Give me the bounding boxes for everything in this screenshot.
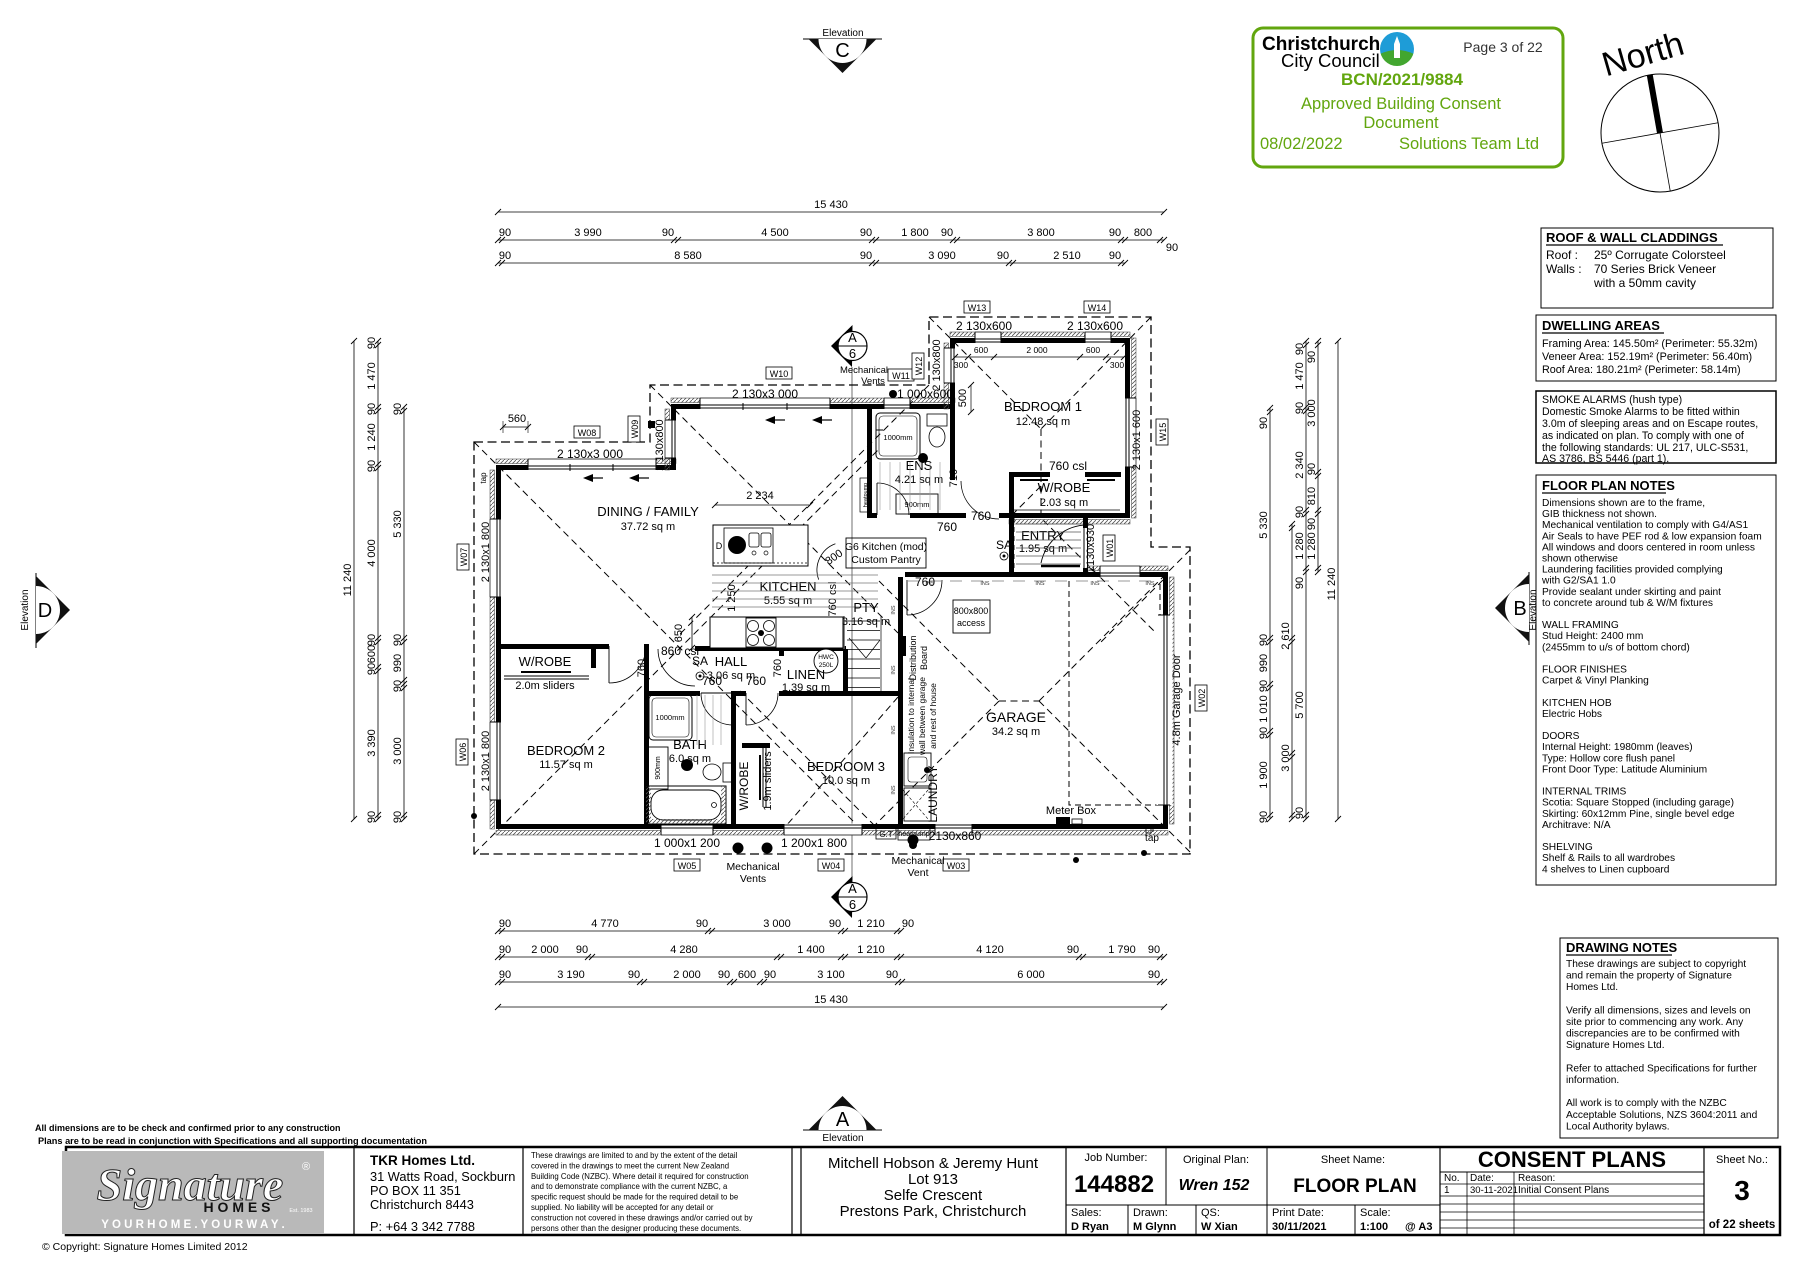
svg-text:600: 600	[738, 969, 756, 981]
svg-text:2 130x800: 2 130x800	[654, 419, 666, 470]
svg-text:Electric Hobs: Electric Hobs	[1542, 709, 1602, 720]
svg-text:90: 90	[499, 918, 511, 930]
svg-text:Y O U R H O M E . Y O U R W: Y O U R H O M E . Y O U R W A Y .	[101, 1219, 284, 1231]
svg-text:These drawings are subject to: These drawings are subject to copyright	[1566, 959, 1746, 970]
svg-text:3.06 sq m: 3.06 sq m	[707, 670, 755, 682]
svg-text:HALL: HALL	[715, 654, 748, 669]
svg-text:2 000: 2 000	[1026, 345, 1048, 355]
svg-text:11 240: 11 240	[1326, 568, 1338, 601]
svg-text:Homes Ltd.: Homes Ltd.	[1566, 982, 1618, 993]
svg-text:2 130x600: 2 130x600	[1067, 319, 1123, 333]
svg-text:4 500: 4 500	[761, 227, 789, 239]
svg-text:No.: No.	[1444, 1173, 1460, 1184]
svg-text:1000mm: 1000mm	[655, 713, 684, 722]
svg-text:600: 600	[366, 645, 378, 663]
svg-text:Veneer Area: 152.19m² (Perimet: Veneer Area: 152.19m² (Perimeter: 56.40m…	[1542, 351, 1752, 363]
svg-text:A: A	[836, 1109, 850, 1131]
svg-text:SA: SA	[692, 654, 708, 668]
svg-text:Lot 913: Lot 913	[908, 1171, 958, 1188]
svg-text:INS: INS	[980, 581, 990, 587]
svg-text:W13: W13	[968, 303, 987, 313]
svg-text:Laundering facilities provided: Laundering facilities provided complying	[1542, 565, 1723, 576]
svg-text:INS: INS	[891, 665, 897, 675]
svg-text:11.57 sq m: 11.57 sq m	[539, 759, 593, 771]
svg-text:6: 6	[849, 897, 856, 912]
svg-text:Page 3 of 22: Page 3 of 22	[1463, 39, 1543, 55]
svg-text:3 190: 3 190	[557, 969, 585, 981]
svg-text:Elevation: Elevation	[20, 589, 31, 630]
svg-text:4 shelves to Linen cupboard: 4 shelves to Linen cupboard	[1542, 864, 1670, 875]
svg-text:2 130x3 000: 2 130x3 000	[557, 447, 623, 461]
svg-text:2130x930: 2130x930	[1085, 524, 1097, 572]
svg-text:LINEN: LINEN	[787, 667, 825, 682]
svg-text:90: 90	[1148, 969, 1160, 981]
svg-text:90: 90	[860, 250, 872, 262]
svg-text:WALL FRAMING: WALL FRAMING	[1542, 620, 1619, 631]
svg-text:Job Number:: Job Number:	[1085, 1152, 1148, 1164]
svg-text:persons other than the designe: persons other than the designer producin…	[531, 1224, 741, 1233]
svg-text:access: access	[957, 618, 986, 628]
svg-text:90: 90	[1258, 811, 1270, 823]
svg-text:90: 90	[576, 944, 588, 956]
svg-text:Signature Homes Ltd.: Signature Homes Ltd.	[1566, 1040, 1665, 1051]
svg-text:Internal Height: 1980mm (leave: Internal Height: 1980mm (leaves)	[1542, 742, 1693, 753]
svg-text:2.0m sliders: 2.0m sliders	[515, 680, 575, 692]
svg-text:2 510: 2 510	[1053, 250, 1081, 262]
svg-text:W07: W07	[459, 548, 469, 567]
svg-text:W11: W11	[892, 371, 910, 381]
svg-text:Elevation: Elevation	[822, 28, 863, 39]
svg-text:1.95 sq m: 1.95 sq m	[1019, 543, 1067, 555]
svg-text:800x800: 800x800	[954, 606, 989, 616]
svg-text:W04: W04	[822, 861, 841, 871]
svg-text:34.2 sq m: 34.2 sq m	[992, 726, 1040, 738]
svg-text:1 280: 1 280	[1294, 532, 1306, 560]
svg-text:2 130x3 000: 2 130x3 000	[732, 387, 798, 401]
svg-text:2 234: 2 234	[746, 490, 774, 502]
svg-text:AS 3786, BS 5446 (part 1).: AS 3786, BS 5446 (part 1).	[1542, 453, 1669, 465]
svg-text:760 csl: 760 csl	[1049, 459, 1087, 473]
svg-text:INS: INS	[891, 605, 897, 615]
svg-text:Mechanical: Mechanical	[840, 365, 888, 376]
svg-text:DINING / FAMILY: DINING / FAMILY	[597, 504, 699, 519]
svg-text:Sheet No.:: Sheet No.:	[1716, 1154, 1768, 1166]
svg-text:1 470: 1 470	[366, 362, 378, 390]
svg-text:Roof :: Roof :	[1546, 248, 1578, 262]
svg-text:GARAGE: GARAGE	[986, 709, 1046, 725]
svg-text:INS: INS	[925, 581, 935, 587]
svg-text:Sales:: Sales:	[1071, 1207, 1102, 1219]
svg-text:INS: INS	[1035, 581, 1045, 587]
svg-text:site prior to commencing any w: site prior to commencing any work. Any	[1566, 1017, 1744, 1028]
svg-text:(2455mm to u/s of bottom chord: (2455mm to u/s of bottom chord)	[1542, 642, 1690, 653]
svg-text:KITCHEN: KITCHEN	[759, 579, 816, 594]
svg-text:W/ROBE: W/ROBE	[737, 762, 751, 811]
svg-text:Plans are to be read in conjun: Plans are to be read in conjunction with…	[38, 1136, 427, 1146]
svg-text:90: 90	[1306, 351, 1318, 363]
svg-text:90: 90	[860, 227, 872, 239]
svg-text:90: 90	[392, 403, 404, 415]
svg-text:5 330: 5 330	[392, 510, 404, 538]
svg-text:BCN/2021/9884: BCN/2021/9884	[1341, 70, 1463, 89]
svg-text:heatpump: heatpump	[863, 483, 869, 507]
svg-text:Mitchell Hobson & Jeremy Hunt: Mitchell Hobson & Jeremy Hunt	[828, 1155, 1039, 1172]
svg-text:H O M E S: H O M E S	[204, 1199, 271, 1215]
svg-text:Reason:: Reason:	[1518, 1173, 1555, 1184]
svg-text:710: 710	[948, 469, 960, 487]
svg-text:FLOOR PLAN NOTES: FLOOR PLAN NOTES	[1542, 478, 1675, 493]
svg-text:Building Code (NZBC). Where de: Building Code (NZBC). Where detail it re…	[531, 1172, 749, 1181]
svg-text:3 990: 3 990	[574, 227, 602, 239]
svg-text:760: 760	[772, 659, 784, 677]
svg-text:90: 90	[1294, 807, 1306, 819]
svg-text:Provide sealant under skirting: Provide sealant under skirting and paint	[1542, 587, 1721, 598]
svg-text:GIB thickness not shown.: GIB thickness not shown.	[1542, 509, 1657, 520]
svg-text:1 280: 1 280	[1306, 532, 1318, 560]
svg-text:Local Authority bylaws.: Local Authority bylaws.	[1566, 1121, 1670, 1132]
svg-text:ENTRY: ENTRY	[1021, 528, 1065, 543]
svg-text:90: 90	[628, 969, 640, 981]
svg-text:90: 90	[1294, 506, 1306, 518]
svg-text:90: 90	[1306, 463, 1318, 475]
svg-text:600: 600	[1086, 345, 1100, 355]
svg-text:1 250: 1 250	[726, 584, 738, 612]
svg-text:990: 990	[1258, 654, 1270, 672]
svg-text:Vents: Vents	[740, 873, 766, 885]
svg-text:1 790: 1 790	[1108, 944, 1136, 956]
svg-text:3 000: 3 000	[1280, 744, 1292, 772]
svg-text:INS: INS	[891, 785, 897, 795]
svg-text:covered in the drawings to mee: covered in the drawings to meet the curr…	[531, 1161, 729, 1170]
svg-text:Framing Area: 145.50m² (Perime: Framing Area: 145.50m² (Perimeter: 55.32…	[1542, 338, 1757, 350]
svg-text:2 130x1 800: 2 130x1 800	[480, 522, 492, 583]
svg-text:90: 90	[1258, 634, 1270, 646]
svg-text:90: 90	[1294, 343, 1306, 355]
svg-text:1.39 sq m: 1.39 sq m	[782, 682, 830, 694]
svg-text:Sheet Name:: Sheet Name:	[1321, 1154, 1385, 1166]
svg-text:supplied. No liability will be: supplied. No liability will be accepted …	[531, 1203, 714, 1212]
svg-text:3 000: 3 000	[392, 737, 404, 765]
svg-text:90: 90	[696, 918, 708, 930]
svg-text:90: 90	[886, 969, 898, 981]
svg-text:with a 50mm cavity: with a 50mm cavity	[1593, 276, 1696, 290]
svg-text:4.8m Garage Door: 4.8m Garage Door	[1171, 654, 1183, 745]
svg-text:Domestic Smoke Alarms to be fi: Domestic Smoke Alarms to be fitted withi…	[1542, 406, 1740, 418]
svg-text:tap: tap	[1145, 833, 1159, 844]
svg-text:90: 90	[1067, 944, 1079, 956]
svg-text:Document: Document	[1363, 114, 1439, 132]
svg-text:1 200x1 800: 1 200x1 800	[781, 836, 847, 850]
svg-text:Vent: Vent	[907, 867, 928, 879]
svg-text:600: 600	[974, 345, 988, 355]
svg-text:Solutions Team Ltd: Solutions Team Ltd	[1399, 135, 1539, 153]
svg-text:Date:: Date:	[1470, 1173, 1494, 1184]
svg-text:M Glynn: M Glynn	[1133, 1221, 1177, 1233]
svg-text:3 090: 3 090	[928, 250, 956, 262]
svg-text:90: 90	[1294, 577, 1306, 589]
svg-text:800: 800	[1134, 227, 1152, 239]
svg-text:BEDROOM 2: BEDROOM 2	[527, 743, 605, 758]
svg-text:90: 90	[366, 337, 378, 349]
svg-text:8 580: 8 580	[674, 250, 702, 262]
svg-text:W Xian: W Xian	[1201, 1221, 1238, 1233]
svg-text:Type: Hollow core flush panel: Type: Hollow core flush panel	[1542, 753, 1675, 764]
svg-text:D: D	[716, 541, 723, 551]
svg-text:W09: W09	[630, 420, 640, 439]
svg-text:All work is to comply with the: All work is to comply with the NZBC	[1566, 1098, 1727, 1109]
svg-text:90: 90	[366, 811, 378, 823]
svg-text:500: 500	[957, 389, 969, 407]
svg-text:3 000: 3 000	[1306, 399, 1318, 427]
svg-text:Skirting: 60x12mm Pine, single: Skirting: 60x12mm Pine, single bevel edg…	[1542, 809, 1735, 820]
svg-text:90: 90	[1166, 242, 1178, 254]
svg-text:with G2/SA1 1.0: with G2/SA1 1.0	[1541, 576, 1616, 587]
svg-text:2 000: 2 000	[531, 944, 559, 956]
svg-text:TKR Homes Ltd.: TKR Homes Ltd.	[370, 1153, 475, 1168]
svg-text:Scotia: Square Stopped (includ: Scotia: Square Stopped (including garage…	[1542, 798, 1734, 809]
svg-text:4 120: 4 120	[976, 944, 1004, 956]
svg-text:30/11/2021: 30/11/2021	[1272, 1221, 1326, 1233]
svg-text:300: 300	[1110, 360, 1124, 370]
svg-text:30-11-2021: 30-11-2021	[1470, 1185, 1518, 1196]
svg-text:300: 300	[954, 360, 968, 370]
svg-text:G6 Kitchen (mod): G6 Kitchen (mod)	[845, 541, 927, 553]
svg-text:heatpump: heatpump	[898, 831, 929, 838]
svg-text:2 000: 2 000	[673, 969, 701, 981]
svg-text:3 000: 3 000	[763, 918, 791, 930]
svg-text:Drawn:: Drawn:	[1133, 1207, 1168, 1219]
svg-text:90: 90	[941, 227, 953, 239]
svg-text:Front Door Type: Latitude Alum: Front Door Type: Latitude Aluminium	[1542, 764, 1707, 775]
svg-text:FLOOR FINISHES: FLOOR FINISHES	[1542, 665, 1627, 676]
svg-text:SA: SA	[996, 538, 1012, 552]
svg-text:Mechanical ventilation to comp: Mechanical ventilation to comply with G4…	[1542, 520, 1748, 531]
svg-text:© Copyright: Signature Homes L: © Copyright: Signature Homes Limited 201…	[42, 1241, 248, 1253]
svg-text:760: 760	[937, 520, 957, 534]
svg-text:5.55 sq m: 5.55 sq m	[764, 595, 812, 607]
svg-text:Roof Area: 180.21m² (Perimeter: Roof Area: 180.21m² (Perimeter: 58.14m)	[1542, 364, 1741, 376]
svg-text:Custom Pantry: Custom Pantry	[851, 554, 921, 566]
svg-text:HWC: HWC	[818, 654, 834, 661]
svg-text:Print Date:: Print Date:	[1272, 1207, 1324, 1219]
svg-text:1:100: 1:100	[1360, 1221, 1388, 1233]
svg-text:4.21 sq m: 4.21 sq m	[895, 474, 943, 486]
svg-text:90: 90	[1109, 250, 1121, 262]
svg-text:10.0 sq m: 10.0 sq m	[822, 775, 870, 787]
svg-text:12.48 sq m: 12.48 sq m	[1016, 416, 1070, 428]
svg-text:Meter Box: Meter Box	[1046, 805, 1097, 817]
svg-text:Insulation to internal: Insulation to internal	[906, 678, 916, 754]
svg-text:1 000x600: 1 000x600	[897, 387, 953, 401]
svg-text:INTERNAL TRIMS: INTERNAL TRIMS	[1542, 787, 1627, 798]
svg-text:Architrave: N/A: Architrave: N/A	[1542, 820, 1611, 831]
svg-text:3 800: 3 800	[1027, 227, 1055, 239]
svg-text:Acceptable Solutions, NZS 3604: Acceptable Solutions, NZS 3604:2011 and	[1566, 1110, 1758, 1121]
svg-text:90: 90	[366, 663, 378, 675]
svg-text:D Ryan: D Ryan	[1071, 1221, 1109, 1233]
svg-text:2 340: 2 340	[1294, 451, 1306, 479]
svg-text:Elevation: Elevation	[1528, 589, 1539, 630]
svg-text:2 130x1 800: 2 130x1 800	[480, 731, 492, 792]
svg-text:P: +64 3 342 7788: P: +64 3 342 7788	[370, 1219, 475, 1234]
svg-text:1 400: 1 400	[797, 944, 825, 956]
svg-text:SHELVING: SHELVING	[1542, 842, 1593, 853]
svg-text:Mechanical: Mechanical	[726, 861, 779, 873]
svg-text:1 800: 1 800	[901, 227, 929, 239]
svg-text:90: 90	[902, 918, 914, 930]
svg-text:90: 90	[1258, 680, 1270, 692]
svg-text:W08: W08	[578, 428, 597, 438]
svg-text:City Council: City Council	[1281, 50, 1380, 71]
svg-text:of 22 sheets: of 22 sheets	[1709, 1219, 1775, 1231]
svg-text:1000mm: 1000mm	[883, 433, 912, 442]
svg-text:90: 90	[1258, 417, 1270, 429]
svg-text:70 Series Brick Veneer: 70 Series Brick Veneer	[1594, 262, 1716, 276]
svg-text:FLOOR PLAN: FLOOR PLAN	[1293, 1176, 1417, 1197]
svg-text:144882: 144882	[1074, 1171, 1154, 1198]
svg-text:90: 90	[392, 680, 404, 692]
svg-text:90: 90	[997, 250, 1009, 262]
svg-text:W02: W02	[1197, 689, 1207, 708]
svg-text:construction not covered in th: construction not covered in these drawin…	[531, 1213, 753, 1222]
svg-text:2 130x600: 2 130x600	[956, 319, 1012, 333]
svg-text:2130x860: 2130x860	[929, 829, 982, 843]
svg-text:W03: W03	[947, 861, 966, 871]
svg-text:A: A	[848, 881, 857, 896]
svg-text:Verify all dimensions, sizes a: Verify all dimensions, sizes and levels …	[1566, 1005, 1751, 1016]
svg-text:90: 90	[764, 969, 776, 981]
svg-text:wall between garage: wall between garage	[917, 677, 927, 756]
svg-text:900mm: 900mm	[904, 500, 929, 509]
svg-text:ROOF & WALL CLADDINGS: ROOF & WALL CLADDINGS	[1546, 230, 1718, 245]
svg-text:90: 90	[829, 918, 841, 930]
svg-text:990: 990	[392, 654, 404, 672]
svg-text:Elevation: Elevation	[822, 1133, 863, 1144]
svg-text:W14: W14	[1088, 303, 1107, 313]
svg-text:90: 90	[1109, 227, 1121, 239]
svg-text:90: 90	[499, 250, 511, 262]
svg-text:90: 90	[1294, 402, 1306, 414]
svg-text:W12: W12	[914, 357, 924, 376]
svg-text:as indicated on plan. To compl: as indicated on plan. To comply with one…	[1542, 430, 1744, 442]
svg-text:1 900: 1 900	[1258, 761, 1270, 789]
svg-text:information.: information.	[1566, 1075, 1619, 1086]
svg-text:3.16 sq m: 3.16 sq m	[842, 616, 890, 628]
svg-text:90: 90	[392, 811, 404, 823]
svg-text:discrepancies are to be confir: discrepancies are to be confirmed with	[1566, 1029, 1740, 1040]
svg-text:Mechanical: Mechanical	[891, 855, 944, 867]
svg-text:3 390: 3 390	[366, 729, 378, 757]
svg-text:90: 90	[662, 227, 674, 239]
svg-text:Dimensions shown are to the fr: Dimensions shown are to the frame,	[1542, 498, 1705, 509]
svg-text:2 130x800: 2 130x800	[931, 339, 943, 390]
svg-text:3.0m of sleeping areas and on: 3.0m of sleeping areas and on Escape rou…	[1542, 418, 1758, 430]
svg-text:These drawings are limited to: These drawings are limited to and by the…	[531, 1151, 738, 1160]
svg-text:90: 90	[1258, 727, 1270, 739]
svg-text:Stud Height: 2400 mm: Stud Height: 2400 mm	[1542, 631, 1643, 642]
svg-text:A: A	[848, 330, 857, 345]
svg-text:KITCHEN HOB: KITCHEN HOB	[1542, 698, 1612, 709]
svg-text:W06: W06	[458, 743, 468, 762]
svg-text:INS: INS	[1145, 581, 1155, 587]
svg-text:®: ®	[302, 1161, 310, 1173]
svg-text:90: 90	[499, 227, 511, 239]
svg-text:760: 760	[636, 659, 648, 677]
svg-text:90: 90	[366, 460, 378, 472]
svg-text:C: C	[835, 40, 849, 62]
svg-text:90: 90	[499, 969, 511, 981]
svg-text:90: 90	[1148, 944, 1160, 956]
svg-text:Prestons Park, Christchurch: Prestons Park, Christchurch	[840, 1203, 1027, 1220]
svg-text:4 000: 4 000	[366, 539, 378, 567]
svg-text:2.03 sq m: 2.03 sq m	[1040, 497, 1088, 509]
svg-text:All dimensions are to be check: All dimensions are to be check and confi…	[35, 1123, 341, 1133]
svg-text:08/02/2022: 08/02/2022	[1260, 135, 1343, 153]
svg-text:1 470: 1 470	[1294, 362, 1306, 390]
svg-text:760: 760	[971, 509, 991, 523]
svg-text:15 430: 15 430	[814, 199, 848, 211]
svg-text:QS:: QS:	[1201, 1207, 1220, 1219]
svg-text:1 240: 1 240	[366, 423, 378, 451]
svg-text:and to demonstrate compliance: and to demonstrate compliance with the c…	[531, 1182, 728, 1191]
svg-text:DWELLING AREAS: DWELLING AREAS	[1542, 318, 1660, 333]
svg-text:4 770: 4 770	[591, 918, 619, 930]
svg-text:90: 90	[366, 403, 378, 415]
svg-text:All windows and doors centered: All windows and doors centered in room u…	[1542, 542, 1755, 553]
svg-text:Approved Building Consent: Approved Building Consent	[1301, 95, 1501, 113]
svg-text:W05: W05	[678, 861, 697, 871]
svg-text:LAUNDRY: LAUNDRY	[926, 765, 940, 822]
svg-text:shown otherwise: shown otherwise	[1542, 554, 1618, 565]
svg-text:5 700: 5 700	[1294, 691, 1306, 719]
svg-text:1 000x1 200: 1 000x1 200	[654, 836, 720, 850]
svg-text:Christchurch 8443: Christchurch 8443	[370, 1197, 474, 1212]
svg-text:Refer to attached Specificatio: Refer to attached Specifications for fur…	[1566, 1063, 1757, 1074]
svg-text:1 210: 1 210	[857, 944, 885, 956]
svg-text:Selfe Crescent: Selfe Crescent	[884, 1187, 983, 1204]
svg-text:Scale:: Scale:	[1360, 1207, 1391, 1219]
svg-text:W/ROBE: W/ROBE	[519, 654, 572, 669]
svg-text:2 610: 2 610	[1280, 622, 1292, 650]
svg-text:1 010: 1 010	[1258, 695, 1270, 723]
svg-text:1 210: 1 210	[857, 918, 885, 930]
svg-text:Shelf & Rails to all wardrobes: Shelf & Rails to all wardrobes	[1542, 853, 1675, 864]
svg-text:specific request should be mad: specific request should be made for the …	[531, 1193, 738, 1202]
svg-text:37.72 sq m: 37.72 sq m	[621, 521, 675, 533]
svg-text:PTY: PTY	[853, 600, 879, 615]
svg-text:15 430: 15 430	[814, 994, 848, 1006]
svg-text:Board: Board	[919, 646, 929, 670]
svg-text:SMOKE ALARMS (hush type): SMOKE ALARMS (hush type)	[1542, 394, 1682, 406]
svg-text:650: 650	[673, 624, 685, 642]
svg-text:1: 1	[1444, 1185, 1450, 1196]
svg-text:DRAWING NOTES: DRAWING NOTES	[1566, 940, 1678, 955]
svg-text:W01: W01	[1105, 539, 1115, 558]
svg-text:25º Corrugate Colorsteel: 25º Corrugate Colorsteel	[1594, 248, 1726, 262]
svg-text:DOORS: DOORS	[1542, 731, 1580, 742]
svg-text:W15: W15	[1158, 423, 1168, 442]
svg-text:Carpet & Vinyl Planking: Carpet & Vinyl Planking	[1542, 676, 1649, 687]
svg-text:31 Watts Road, Sockburn: 31 Watts Road, Sockburn	[370, 1169, 515, 1184]
svg-text:Original Plan:: Original Plan:	[1183, 1154, 1249, 1166]
svg-text:Distribution: Distribution	[908, 635, 918, 680]
svg-text:90: 90	[366, 634, 378, 646]
svg-text:@ A3: @ A3	[1405, 1221, 1432, 1233]
svg-text:CONSENT PLANS: CONSENT PLANS	[1478, 1147, 1666, 1172]
svg-text:3 100: 3 100	[817, 969, 845, 981]
svg-text:11 240: 11 240	[342, 564, 354, 597]
svg-text:1.9m sliders: 1.9m sliders	[762, 751, 774, 811]
